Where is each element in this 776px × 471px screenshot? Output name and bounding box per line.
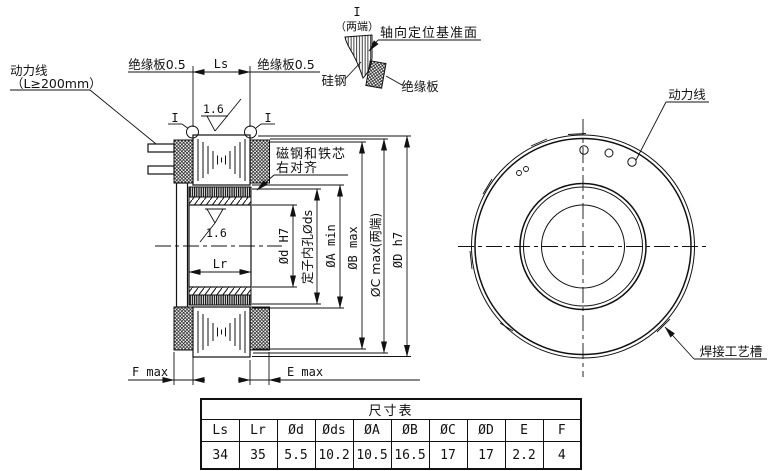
cell-value: 35: [239, 442, 277, 470]
col-header: Lr: [239, 420, 277, 442]
cell-value: 5.5: [277, 442, 315, 470]
col-header: ØD: [467, 420, 505, 442]
roughness-top: 1.6: [201, 99, 241, 131]
weld-grooves: [470, 134, 670, 333]
cell-value: 17: [429, 442, 467, 470]
size-table-header-row: Ls Lr Ød Øds ØA ØB ØC ØD E F: [201, 420, 581, 442]
cell-value: 34: [201, 442, 239, 470]
dim-b-label: ØB max: [346, 226, 360, 269]
core-ring-top: [189, 197, 251, 205]
col-header: Ød: [277, 420, 315, 442]
stator-winding-bottom: [193, 307, 250, 357]
dim-e: E max: [238, 352, 420, 385]
front-view: 动力线 焊接工艺槽: [458, 87, 767, 377]
dim-d-bore-label: Ød H7: [277, 228, 291, 264]
roughness-top-value: 1.6: [203, 102, 224, 116]
cell-value: 10.5: [353, 442, 391, 470]
silicon-steel-label: 硅钢: [321, 73, 346, 88]
magnet-align-line1: 磁钢和铁芯: [276, 147, 346, 162]
size-table: 尺寸表 Ls Lr Ød Øds ØA ØB ØC ØD E F 34 35 5…: [200, 398, 582, 470]
power-line-leader: [10, 90, 161, 148]
col-header: E: [505, 420, 543, 442]
col-header: ØA: [353, 420, 391, 442]
roughness-bore-value: 1.6: [206, 226, 227, 240]
weld-groove-label: 焊接工艺槽: [700, 344, 763, 359]
dim-f: F max: [128, 352, 205, 385]
col-header: F: [543, 420, 581, 442]
lead-wire-bottom: [148, 166, 174, 174]
dim-ds-label: 定子内孔Øds: [300, 210, 315, 284]
detail-mark-right-label: I: [264, 111, 271, 125]
lead-wire-top: [148, 144, 174, 152]
front-power-line-label: 动力线: [668, 87, 706, 102]
engineering-drawing-canvas: 动力线 （L≥200mm）: [0, 0, 776, 471]
stator-winding-top: [193, 135, 250, 185]
f-max-label: F max: [132, 365, 168, 379]
magnet-top: [189, 187, 251, 197]
lr-label: Lr: [213, 257, 227, 271]
dim-dd-label: ØD h7: [391, 232, 405, 268]
col-header: Øds: [315, 420, 353, 442]
ls-label: Ls: [214, 57, 228, 71]
detail-view-mark: I: [353, 5, 360, 19]
magnet-bottom: [189, 295, 251, 305]
size-table-value-row: 34 35 5.5 10.2 10.5 16.5 17 17 2.2 4: [201, 442, 581, 470]
cell-value: 16.5: [391, 442, 429, 470]
detail-view: I （两端） 轴向定位基准面 硅钢 绝缘板: [321, 5, 481, 94]
size-table-title: 尺寸表: [201, 399, 581, 420]
cell-value: 10.2: [315, 442, 353, 470]
dim-c-label: ØC max(两端): [368, 213, 383, 298]
dim-a-label: ØA min: [324, 224, 338, 267]
magnet-align-line2: 右对齐: [276, 160, 318, 176]
dim-ls: 绝缘板0.5 Ls 绝缘板0.5: [128, 57, 320, 127]
insulation-plate-label: 绝缘板: [401, 79, 439, 94]
power-line-note: （L≥200mm）: [11, 76, 102, 91]
insulation-right-label: 绝缘板0.5: [257, 57, 314, 72]
detail-view-mark-note: （两端）: [335, 20, 379, 33]
magnet-align-note: 磁钢和铁芯 右对齐: [257, 147, 348, 190]
size-table-title-row: 尺寸表: [201, 399, 581, 420]
col-header: Ls: [201, 420, 239, 442]
col-header: ØB: [391, 420, 429, 442]
cell-value: 2.2: [505, 442, 543, 470]
core-ring-bottom: [189, 287, 251, 295]
insulation-left-label: 绝缘板0.5: [128, 57, 185, 72]
cell-value: 4: [543, 442, 581, 470]
housing-wall: [177, 183, 188, 307]
detail-mark-left-label: I: [171, 111, 178, 125]
col-header: ØC: [429, 420, 467, 442]
datum-label: 轴向定位基准面: [380, 25, 478, 41]
section-view: 动力线 （L≥200mm）: [10, 57, 420, 385]
cell-value: 17: [467, 442, 505, 470]
e-max-label: E max: [287, 365, 323, 379]
